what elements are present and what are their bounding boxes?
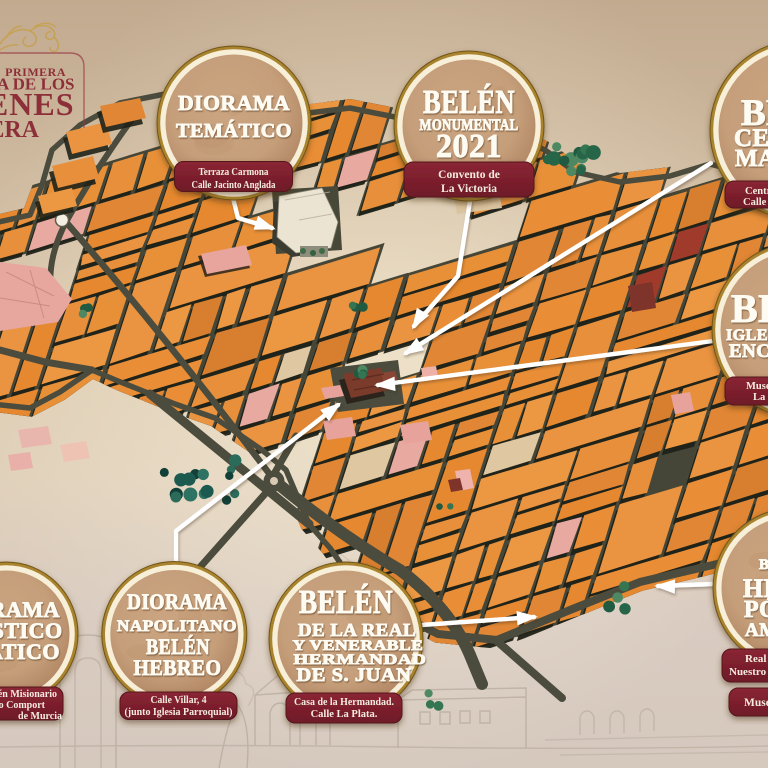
svg-text:La Victoria: La Victoria (441, 183, 497, 195)
svg-text:Calle Corredera, 5: Calle Corredera, 5 (743, 197, 768, 208)
svg-text:PÓSITO Y: PÓSITO Y (744, 596, 768, 623)
svg-text:Calle Jacinto Anglada: Calle Jacinto Anglada (192, 179, 276, 191)
svg-text:AMARGURA: AMARGURA (745, 620, 768, 641)
svg-text:Calle La Plata.: Calle La Plata. (311, 709, 378, 720)
svg-text:Centro de Mayores: Centro de Mayores (745, 186, 768, 197)
svg-text:BELÉN: BELÉN (731, 286, 768, 331)
svg-text:2021: 2021 (436, 128, 502, 165)
svg-text:BELÉN: BELÉN (423, 84, 515, 121)
svg-text:ENCARNACIÓN: ENCARNACIÓN (729, 340, 768, 362)
svg-text:NAPOLITANO: NAPOLITANO (117, 618, 237, 635)
svg-text:Casa de la Hermandad.: Casa de la Hermandad. (294, 697, 394, 708)
svg-text:DIORAMA: DIORAMA (127, 589, 227, 614)
svg-text:DE LA REAL: DE LA REAL (298, 620, 416, 640)
svg-text:MAYORES: MAYORES (735, 146, 768, 172)
svg-text:RIVERA: RIVERA (0, 117, 40, 143)
svg-text:TEMATICO: TEMATICO (0, 639, 60, 664)
svg-text:TEMÁTICO: TEMÁTICO (176, 120, 292, 142)
svg-text:BELÉN: BELÉN (759, 556, 768, 573)
svg-text:de Murcia: de Murcia (18, 711, 62, 722)
svg-text:Real Hermandad de: Real Hermandad de (745, 653, 768, 665)
svg-text:HEBREO: HEBREO (134, 655, 222, 680)
svg-text:Terraza Carmona: Terraza Carmona (199, 166, 269, 178)
svg-text:BELÉN: BELÉN (299, 584, 393, 621)
svg-text:DE S. JUAN: DE S. JUAN (297, 665, 412, 686)
svg-text:Museo de la: Museo de la (744, 697, 768, 709)
svg-text:Museo Arqueológico: Museo Arqueológico (746, 381, 768, 392)
svg-text:La Encarnación: La Encarnación (753, 392, 768, 403)
svg-text:Nuestro Padre Jesús: Nuestro Padre Jesús (729, 666, 768, 678)
svg-text:DIORAMA: DIORAMA (178, 91, 290, 115)
svg-text:Museo Comport: Museo Comport (0, 700, 46, 711)
svg-text:(junto Iglesia Parroquial): (junto Iglesia Parroquial) (125, 707, 233, 718)
svg-text:Calle Villar, 4: Calle Villar, 4 (151, 695, 208, 706)
svg-text:Convento de: Convento de (438, 169, 500, 181)
svg-text:Belén Misionario: Belén Misionario (0, 689, 57, 700)
